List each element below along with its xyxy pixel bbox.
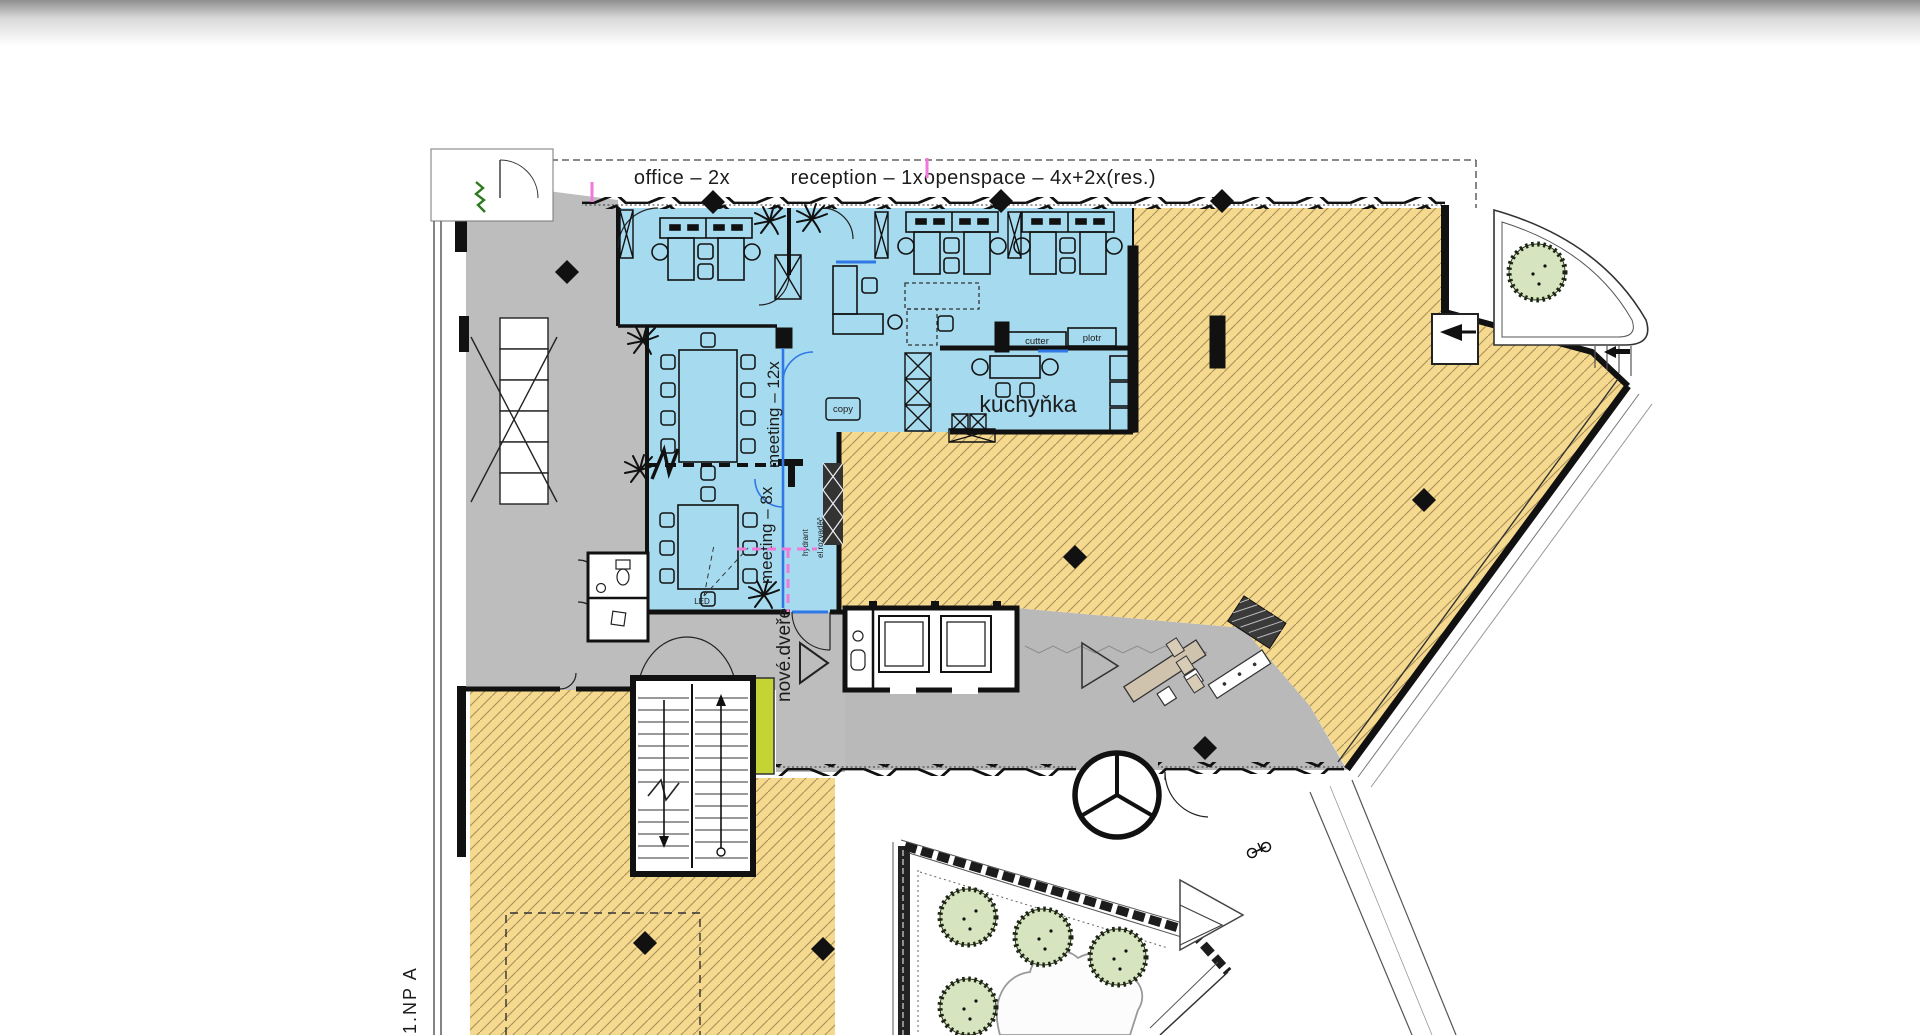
- south-facade: [776, 753, 1344, 837]
- label-office: office – 2x: [634, 167, 730, 189]
- elevator-core: [845, 601, 1017, 694]
- label-copy: copy: [833, 404, 853, 415]
- floor-plan-canvas: office – 2x reception – 1x openspace – 4…: [0, 0, 1920, 1035]
- revolving-door-symbol: [1075, 753, 1159, 837]
- label-kitchen: kuchyňka: [979, 391, 1076, 417]
- label-meeting-small: meeting – 8x: [757, 486, 776, 584]
- label-new-door: nové.dveře: [774, 608, 795, 702]
- cart-icon: [1604, 346, 1616, 358]
- hydrant-rack: [823, 463, 843, 545]
- floor-tag: 1.NP A: [400, 966, 420, 1034]
- label-meeting-large: meeting – 12x: [764, 361, 783, 468]
- floorplan-page: office – 2x reception – 1x openspace – 4…: [0, 0, 1920, 1035]
- exterior-walkway: [1248, 780, 1457, 1035]
- label-plotter: plotr: [1083, 333, 1101, 344]
- side-exit-room: [1432, 314, 1478, 364]
- wc-rooms: [588, 553, 648, 641]
- label-reception: reception – 1x: [791, 167, 924, 189]
- label-cutter: cutter: [1025, 336, 1049, 347]
- stairwell: [633, 678, 753, 874]
- bicycle-icon: [1248, 843, 1271, 858]
- label-electrical: el.rozvaděč: [816, 517, 825, 558]
- tree-icon: [1509, 244, 1565, 300]
- label-led: LED: [694, 597, 710, 606]
- label-hydrant: hydrant: [801, 529, 810, 556]
- top-left-balcony: [431, 149, 553, 221]
- courtyard: [893, 840, 1243, 1035]
- label-openspace: openspace – 4x+2x(res.): [924, 167, 1156, 189]
